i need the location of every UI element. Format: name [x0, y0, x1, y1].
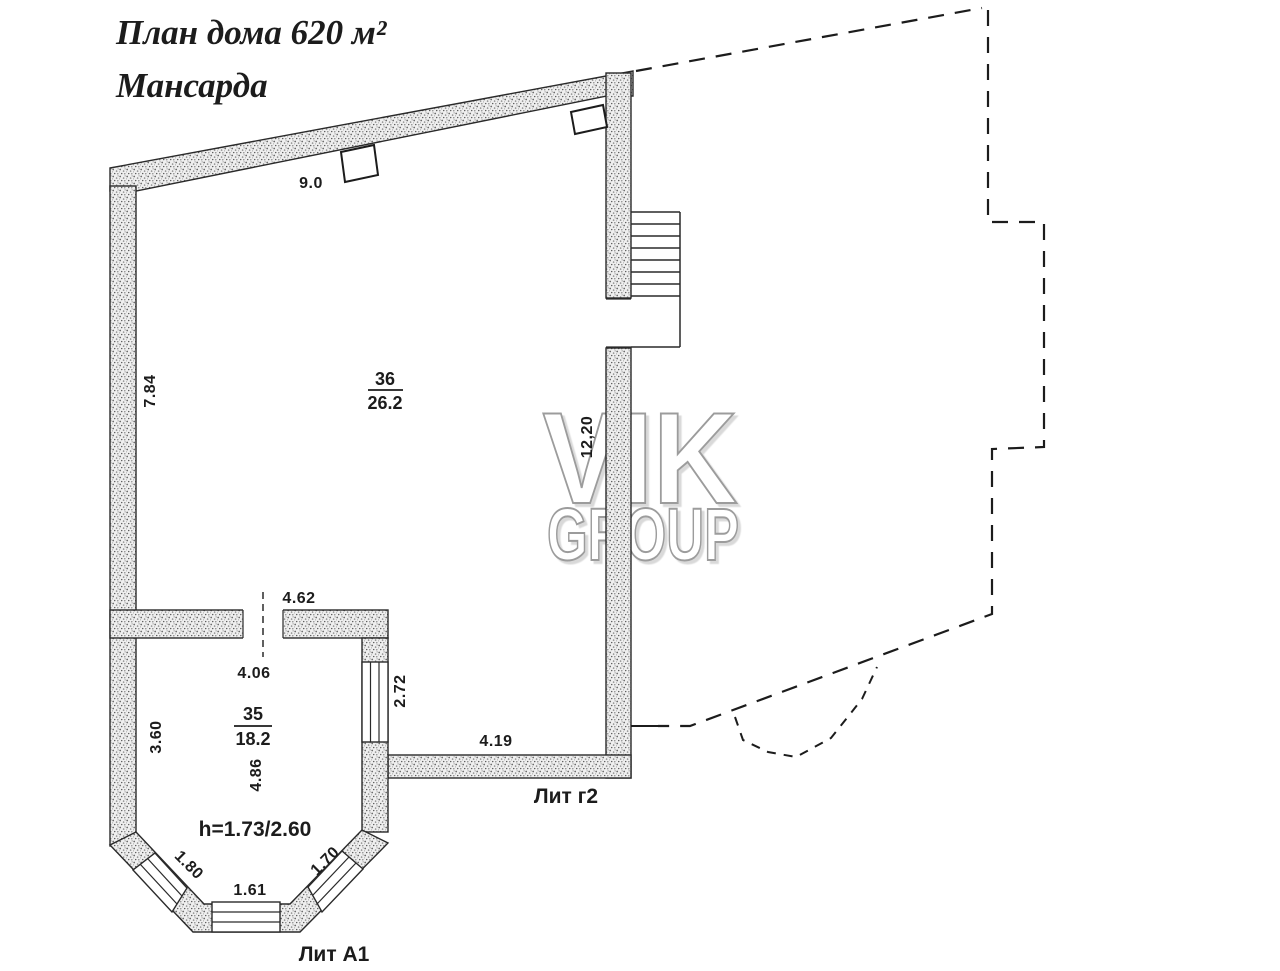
plan-subtitle: Мансарда [115, 66, 268, 105]
room-35-area: 18.2 [235, 729, 270, 749]
wall-left [110, 186, 136, 846]
lit-g2-label: Лит г2 [534, 785, 598, 808]
door-gap [243, 607, 283, 641]
dim-right-wall-inner: 12,20 [579, 416, 596, 459]
dim-bay-bottom-window: 1.61 [233, 882, 266, 899]
dim-left-wall: 7.84 [142, 374, 159, 407]
wall-right-upper [606, 73, 631, 298]
ceiling-height-label: h=1.73/2.60 [199, 818, 312, 841]
watermark-group: GROUP [547, 493, 739, 576]
floor-plan-page: VIK GROUP [0, 0, 1280, 971]
stairwell-opening [604, 299, 633, 347]
room-36-number: 36 [375, 369, 395, 389]
lit-a1-label: Лит А1 [299, 943, 370, 966]
wall-right-lower [606, 348, 631, 778]
chimney-mark-1 [341, 145, 378, 182]
dim-g2-bottom: 4.19 [479, 733, 512, 750]
window-bay-bottom [212, 902, 280, 932]
dim-window-right: 2.72 [392, 674, 409, 707]
watermark: VIK GROUP [543, 385, 740, 576]
window-272 [362, 662, 388, 742]
floor-plan-canvas: VIK GROUP [0, 0, 1280, 971]
wall-g2-bottom [388, 755, 631, 778]
dim-room35-vertical: 4.86 [248, 758, 265, 791]
stair-gap [604, 299, 633, 347]
room-36-area: 26.2 [367, 393, 402, 413]
dim-room35-top-inner: 4.06 [237, 665, 270, 682]
dim-room35-top-outer: 4.62 [282, 590, 315, 607]
room-35-number: 35 [243, 704, 263, 724]
plan-title: План дома 620 м² [115, 13, 388, 52]
dim-room35-left: 3.60 [148, 720, 165, 753]
dim-top-wall: 9.0 [299, 175, 323, 192]
